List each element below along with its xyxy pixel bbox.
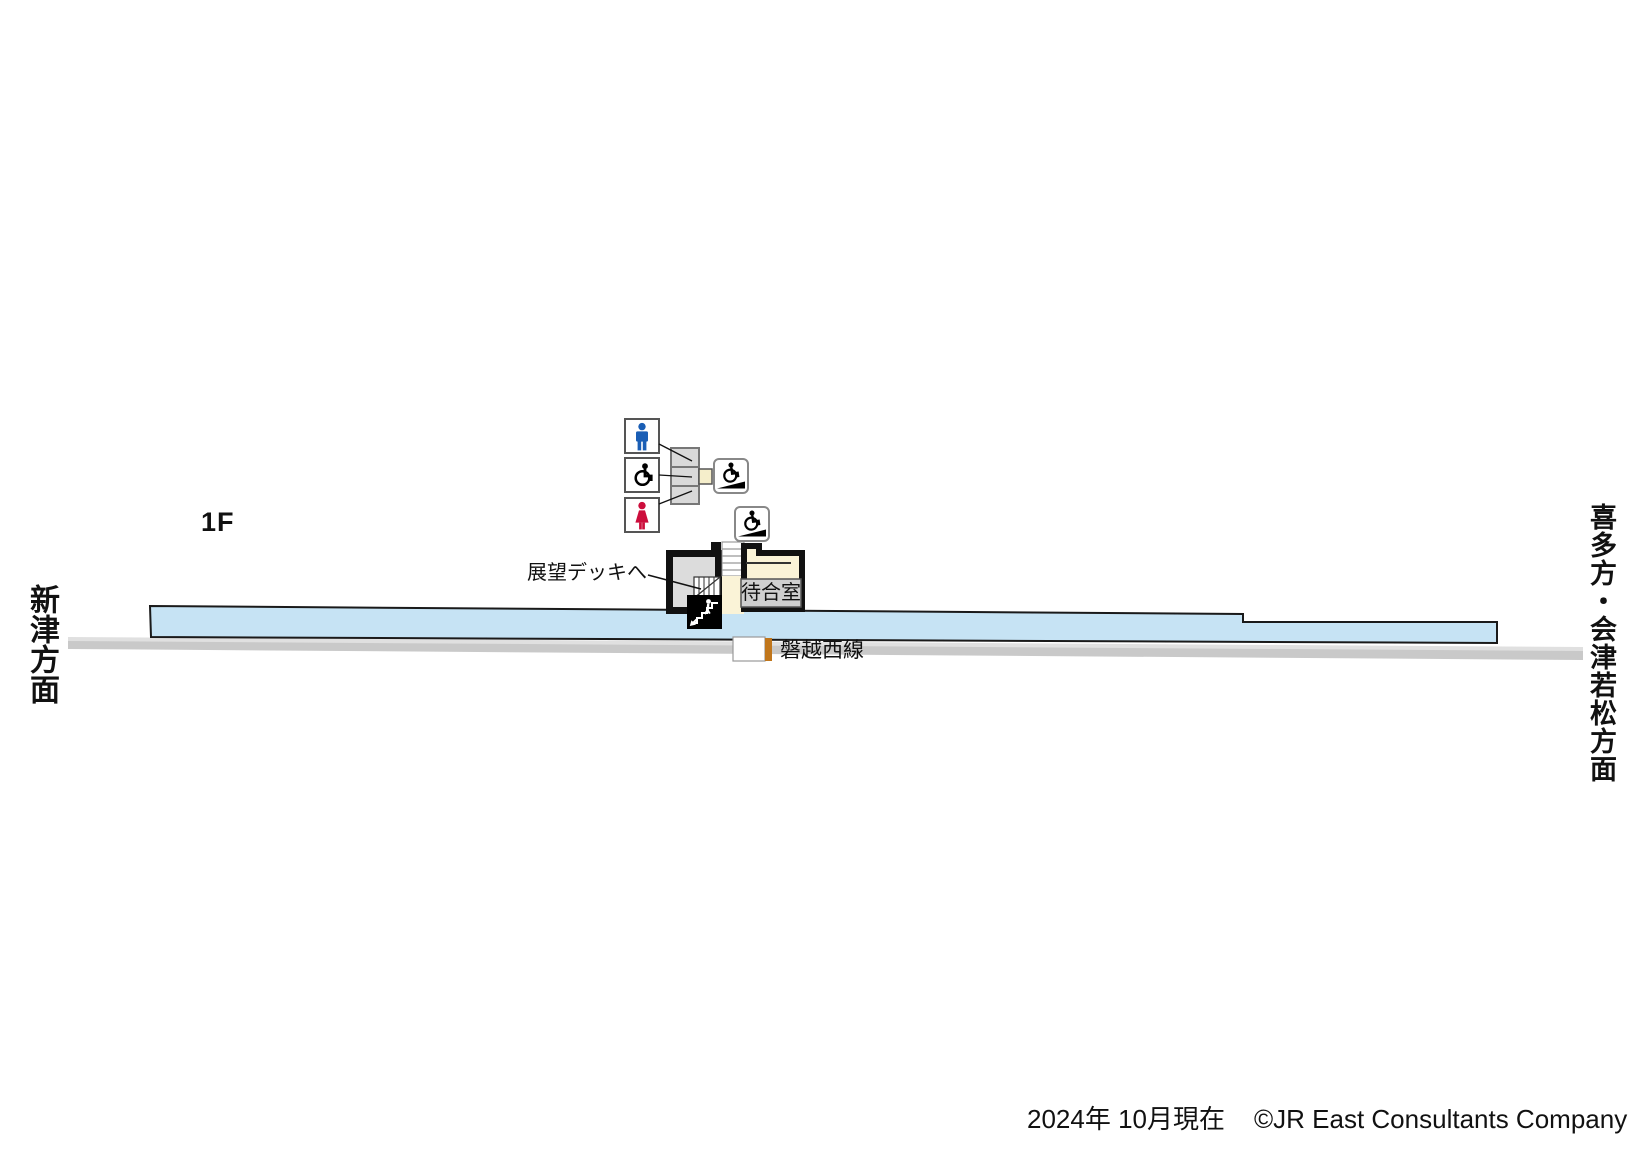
line-name-label: 磐越西線 [780,640,864,661]
station-map-graphics [0,0,1642,1162]
wheelchair-icon [625,458,659,492]
gate-marker [765,638,772,661]
station-map-page: 1F 新津方面 喜多方・会津若松方面 展望デッキへ 待合室 磐越西線 2024年… [0,0,1642,1162]
female-toilet-icon [625,498,659,532]
wheelchair-ramp-icon [714,459,748,493]
floor-label: 1F [201,509,235,536]
map-date: 2024年 10月現在 [1027,1106,1225,1132]
deck-label: 展望デッキへ [527,563,647,583]
platform [150,606,1497,643]
stairs-icon [687,595,722,629]
crossing-box [733,637,765,661]
toilet-entrance [699,469,712,484]
direction-label-right: 喜多方・会津若松方面 [1587,503,1614,783]
wheelchair-ramp-icon-2 [735,507,769,541]
direction-label-left: 新津方面 [26,584,56,704]
copyright: ©JR East Consultants Company [1254,1106,1627,1132]
male-toilet-icon [625,419,659,453]
waiting-room-label: 待合室 [741,583,801,603]
